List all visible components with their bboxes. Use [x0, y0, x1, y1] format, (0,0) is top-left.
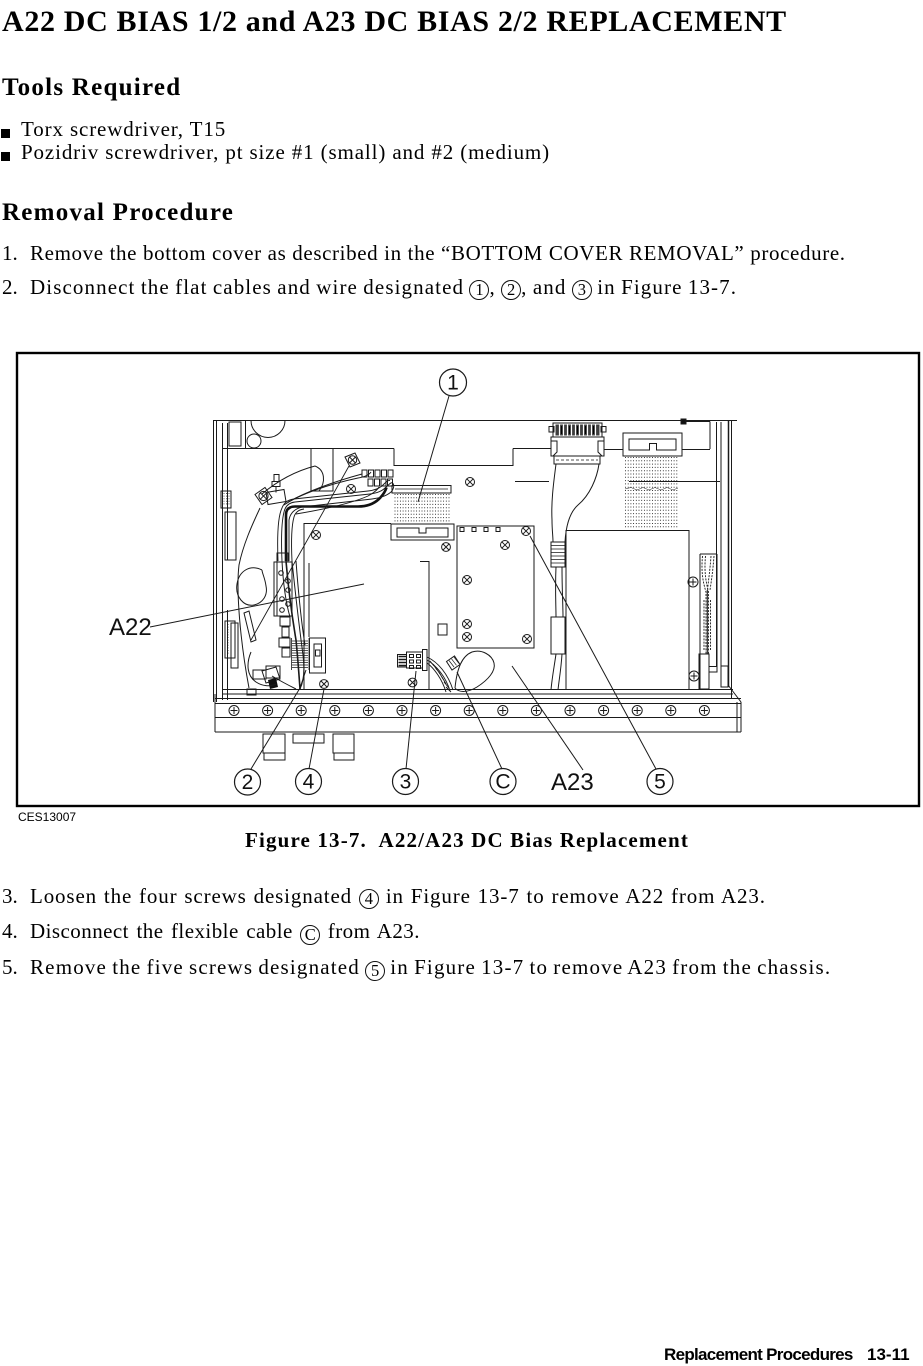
svg-text:5: 5 [654, 771, 666, 794]
svg-text:1: 1 [447, 372, 459, 395]
svg-text:A22: A22 [109, 614, 152, 641]
svg-text:2: 2 [242, 771, 254, 794]
svg-text:4: 4 [303, 771, 315, 794]
svg-text:A23: A23 [551, 769, 594, 796]
svg-text:C: C [495, 771, 510, 794]
svg-text:3: 3 [400, 771, 412, 794]
